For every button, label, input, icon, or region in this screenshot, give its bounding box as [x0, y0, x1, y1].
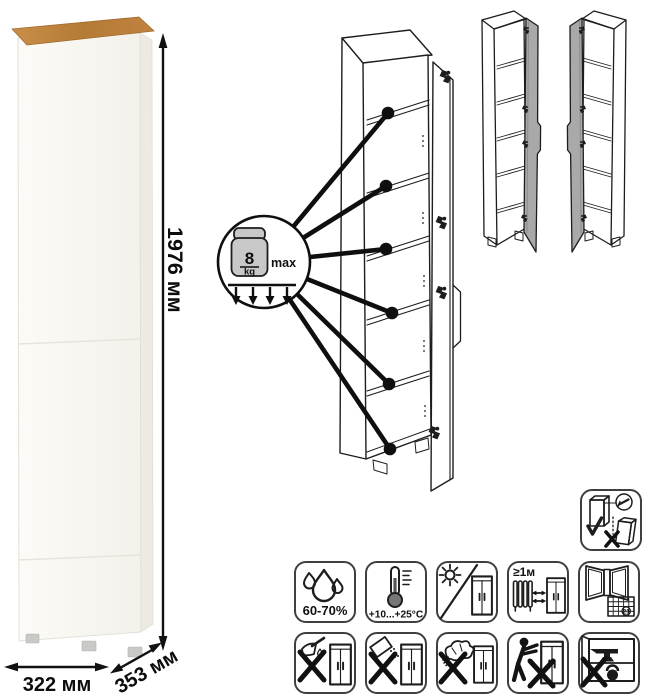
width-label: 322 мм	[23, 674, 92, 696]
wardrobe-glyph	[474, 646, 493, 682]
radiator-icon	[514, 581, 533, 611]
x-mark	[371, 654, 395, 682]
wardrobe-glyph	[330, 645, 351, 685]
wall-anchor-icon	[580, 489, 642, 551]
open-window	[586, 566, 628, 600]
door-right-variant-diagram	[482, 11, 541, 252]
no-sharp-tools-icon	[294, 632, 356, 694]
hinge-icon	[436, 286, 447, 300]
product-photo: 1976 мм 322 мм 353 мм	[0, 0, 200, 700]
temperature-label: +10...+25°C	[369, 610, 424, 621]
ventilation-icon: 21	[578, 561, 640, 623]
person-figure	[514, 638, 537, 680]
cabinet-side	[140, 33, 153, 632]
water-drop	[313, 570, 335, 601]
door-handle-recess	[453, 285, 461, 348]
weight-unit: kg	[244, 267, 255, 278]
no-overload-icon	[578, 632, 640, 694]
shelf-load-callout: 8 kg max	[218, 216, 310, 308]
humidity-label: 60-70%	[303, 603, 348, 618]
calendar-icon: 21	[608, 597, 634, 616]
weight-value: 8	[245, 249, 254, 268]
humidity-icon: 60-70%	[294, 561, 356, 623]
heat-distance-label: ≥1м	[513, 565, 535, 579]
no-direct-sunlight-icon	[436, 561, 498, 623]
no-dragging-icon	[507, 632, 569, 694]
weight-max-label: max	[271, 256, 296, 270]
height-label: 1976 мм	[163, 227, 187, 313]
no-wet-cleaning-icon	[436, 632, 498, 694]
open-door	[431, 62, 461, 491]
wardrobe-glyph	[547, 578, 565, 613]
kettlebell-icon	[607, 666, 618, 681]
distance-arrows	[532, 591, 546, 604]
heat-distance-icon: ≥1м	[507, 561, 569, 623]
cabinet-front	[18, 33, 141, 641]
door-variant-diagrams	[470, 4, 648, 274]
calendar-day-label: 21	[623, 608, 630, 615]
hinge-icon	[436, 216, 447, 230]
thermometer-bulb	[388, 593, 402, 607]
height-arrow	[159, 33, 168, 651]
wardrobe-glyph	[472, 576, 492, 614]
sun-icon	[440, 565, 461, 586]
no-abrasive-powder-icon	[365, 632, 427, 694]
water-drop	[304, 573, 315, 589]
width-arrow	[4, 663, 109, 672]
x-mark	[300, 652, 324, 680]
product-sheet: 1976 мм 322 мм 353 мм	[0, 0, 648, 700]
wardrobe-glyph	[401, 645, 422, 685]
door-left-variant-diagram	[567, 11, 626, 252]
x-mark	[441, 654, 465, 682]
temperature-icon: +10...+25°C	[365, 561, 427, 623]
